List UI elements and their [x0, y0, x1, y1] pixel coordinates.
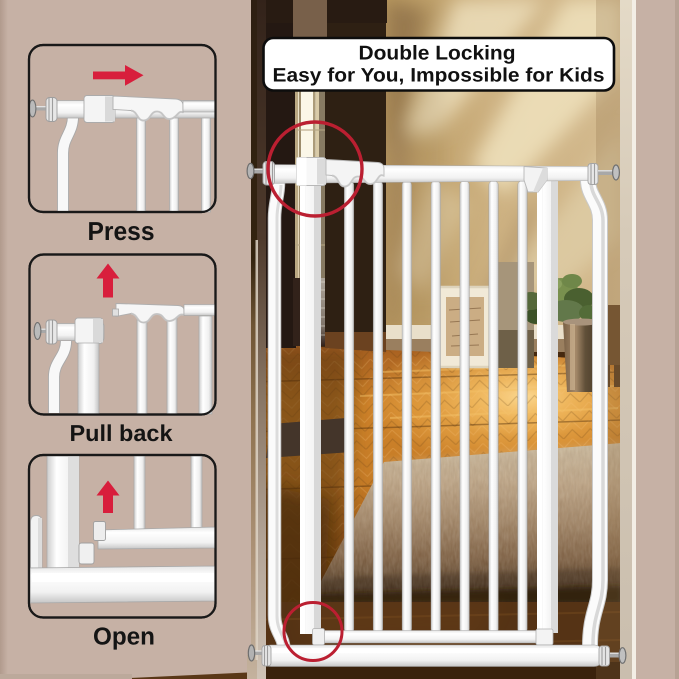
svg-text:Open: Open: [93, 623, 155, 650]
svg-text:Pull back: Pull back: [70, 420, 173, 446]
svg-text:Double Locking: Double Locking: [359, 43, 516, 65]
svg-text:Easy for You, Impossible for K: Easy for You, Impossible for Kids: [273, 65, 605, 87]
svg-text:Press: Press: [88, 216, 155, 246]
